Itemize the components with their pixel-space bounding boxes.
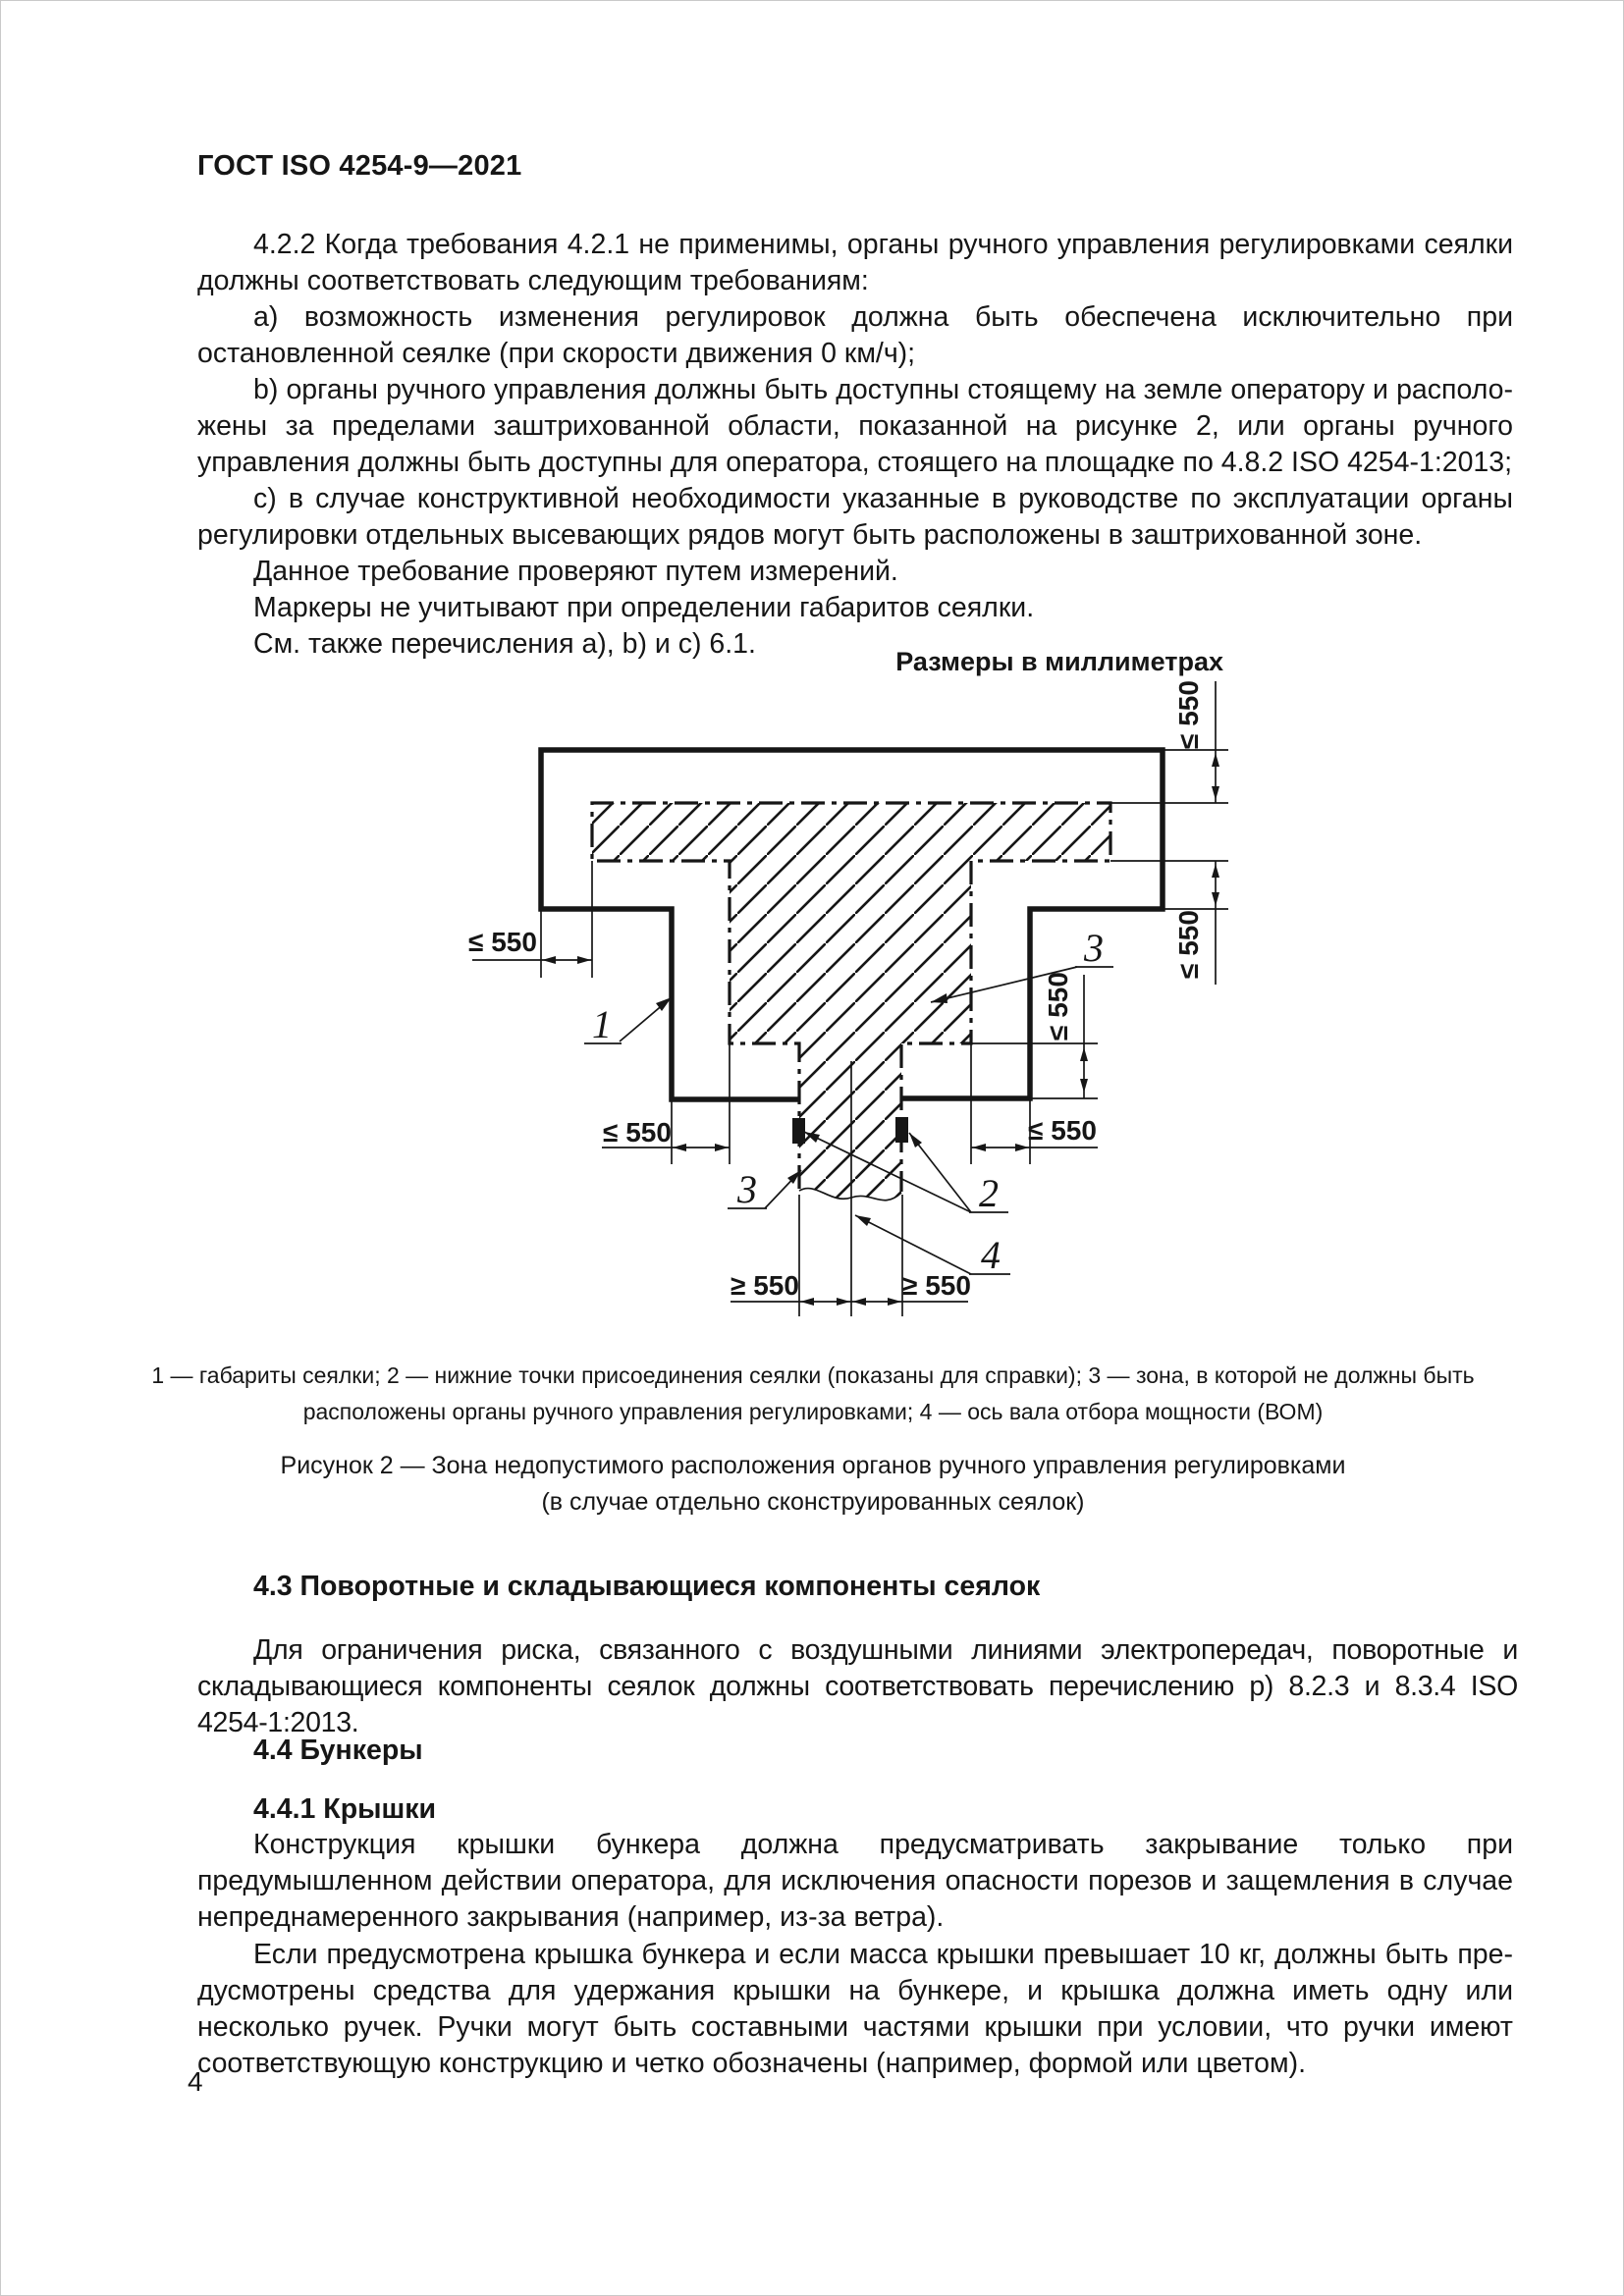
callout-1: 1 xyxy=(592,1002,612,1046)
section-4-4-1-paragraph-1: Конструкция крышки бункера должна предус… xyxy=(197,1827,1513,1936)
dim-label-top-right: ≤ 550 xyxy=(1173,680,1204,749)
dim-label-inner-right: ≤ 550 xyxy=(1043,972,1073,1041)
paragraph-note-1: Данное требование проверяют путем измере… xyxy=(197,554,1513,590)
attachment-point-left xyxy=(792,1118,805,1144)
figure-title-line1: Рисунок 2 — Зона недопустимого расположе… xyxy=(135,1448,1490,1484)
dim-label-bottom-right: ≤ 550 xyxy=(1028,1115,1097,1146)
page-number: 4 xyxy=(188,2066,203,2098)
callout-2: 2 xyxy=(979,1171,999,1215)
dim-label-pto-right: ≥ 550 xyxy=(902,1270,971,1301)
section-4-3-title: 4.3 Поворотные и складывающиеся компонен… xyxy=(197,1569,1513,1605)
callout-3-top: 3 xyxy=(1083,926,1104,970)
dim-label-pto-left: ≥ 550 xyxy=(731,1270,799,1301)
list-item-c: c) в случае конструктивной необходимости… xyxy=(197,481,1513,554)
paragraph-note-2: Маркеры не учитывают при определении габ… xyxy=(197,590,1513,626)
list-item-a: a) возможность изменения регулировок дол… xyxy=(197,299,1513,372)
section-4-4-1-paragraph-2: Если предусмотрена крышка бункера и если… xyxy=(197,1937,1513,2082)
callout-3-bottom: 3 xyxy=(736,1167,757,1211)
dim-label-mid-right: ≤ 550 xyxy=(1173,910,1204,979)
dim-label-left: ≤ 550 xyxy=(468,927,537,957)
figure-legend-line1: 1 — габариты сеялки; 2 — нижние точки пр… xyxy=(135,1358,1490,1393)
list-item-b: b) органы ручного управления должны быть… xyxy=(197,372,1513,481)
attachment-point-right xyxy=(895,1117,908,1143)
section-4-4-1-title: 4.4.1 Крышки xyxy=(197,1791,1513,1828)
document-page: ГОСТ ISO 4254-9—2021 4.2.2 Когда требова… xyxy=(0,0,1624,2296)
figure-title-line2: (в случае отдельно сконструированных сея… xyxy=(135,1484,1490,1521)
section-4-3-paragraph: Для ограничения риска, связанного с возд… xyxy=(197,1632,1518,1741)
document-header: ГОСТ ISO 4254-9—2021 xyxy=(197,150,521,183)
figure-legend-line2: расположены органы ручного управления ре… xyxy=(135,1394,1490,1429)
figure-2-drawing: ≤ 550 ≤ 550 ≤ 550 ≤ 550 ≤ 550 ≤ 550 ≥ 55… xyxy=(413,668,1297,1326)
section-4-4-title: 4.4 Бункеры xyxy=(197,1733,1513,1769)
paragraph-4-2-2: 4.2.2 Когда требования 4.2.1 не применим… xyxy=(197,227,1513,299)
callout-4: 4 xyxy=(981,1233,1001,1277)
dim-label-bottom-left: ≤ 550 xyxy=(603,1117,672,1148)
